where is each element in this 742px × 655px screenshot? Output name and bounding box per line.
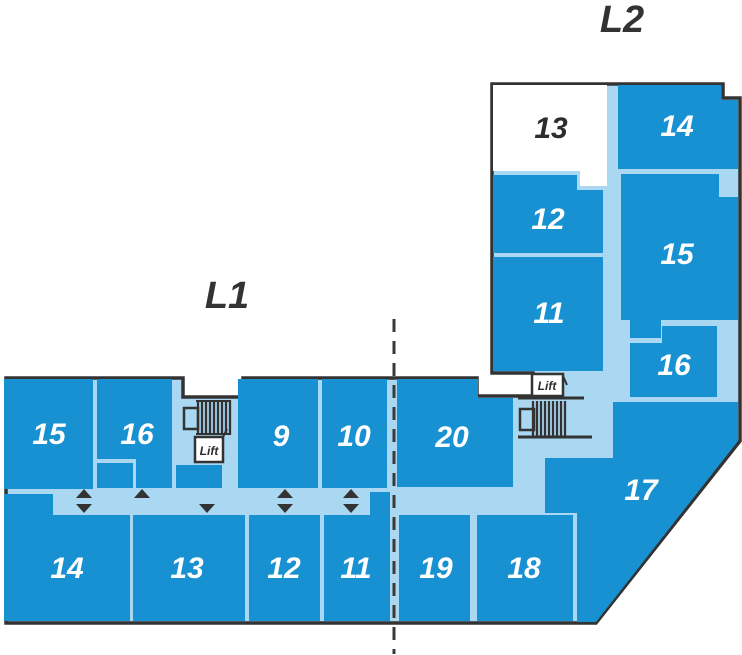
unit-label: 18 [507,552,541,585]
unit-label: 14 [50,552,84,585]
stairs-treads [198,400,230,435]
unit-label: 9 [273,420,290,453]
unit-l1-19[interactable]: 19 [399,515,470,621]
unit-label: 13 [170,552,204,585]
level-l2-title: L2 [600,0,644,41]
unit-label: 11 [340,552,371,585]
unit-l1-10[interactable]: 10 [322,379,387,488]
unit-label: 20 [434,421,469,454]
unit-l2-14[interactable]: 14 [618,85,738,169]
unit-label: 12 [531,203,565,236]
unit-l2-11[interactable]: 11 [493,257,603,371]
unit-l1-9[interactable]: 9 [238,379,318,488]
unit-l1-18[interactable]: 18 [477,515,573,621]
unit-label: 15 [660,238,695,271]
unit-l1-12[interactable]: 12 [249,515,320,621]
unit-l1-unlabeled-area-1 [97,463,133,488]
unit-l2-15[interactable]: 15 [621,174,738,338]
floorplan-page: L1 L2 15 16 9 10 20 14 13 [0,0,742,655]
unit-label: 15 [32,418,67,451]
lift-label: Lift [538,379,558,393]
unit-label: 17 [624,474,659,507]
level-l1-title: L1 [205,275,249,317]
unit-label: 13 [534,112,568,145]
unit-label: 16 [120,418,154,451]
unit-label: 11 [533,297,564,330]
unit-l1-13[interactable]: 13 [133,515,245,621]
unit-label: 16 [657,349,691,382]
unit-label: 19 [419,552,453,585]
unit-label: 10 [337,420,371,453]
unit-label: 12 [267,552,301,585]
unit-l2-13[interactable]: 13 [493,85,607,186]
unit-l1-15[interactable]: 15 [4,379,93,489]
stairs-treads [533,401,565,436]
unit-label: 14 [660,110,694,143]
floorplan-svg: L1 L2 15 16 9 10 20 14 13 [0,0,742,655]
lift-icon-l2[interactable]: Lift [532,374,567,396]
lift-label: Lift [200,444,220,458]
unit-l1-unlabeled-area-2 [176,465,222,488]
